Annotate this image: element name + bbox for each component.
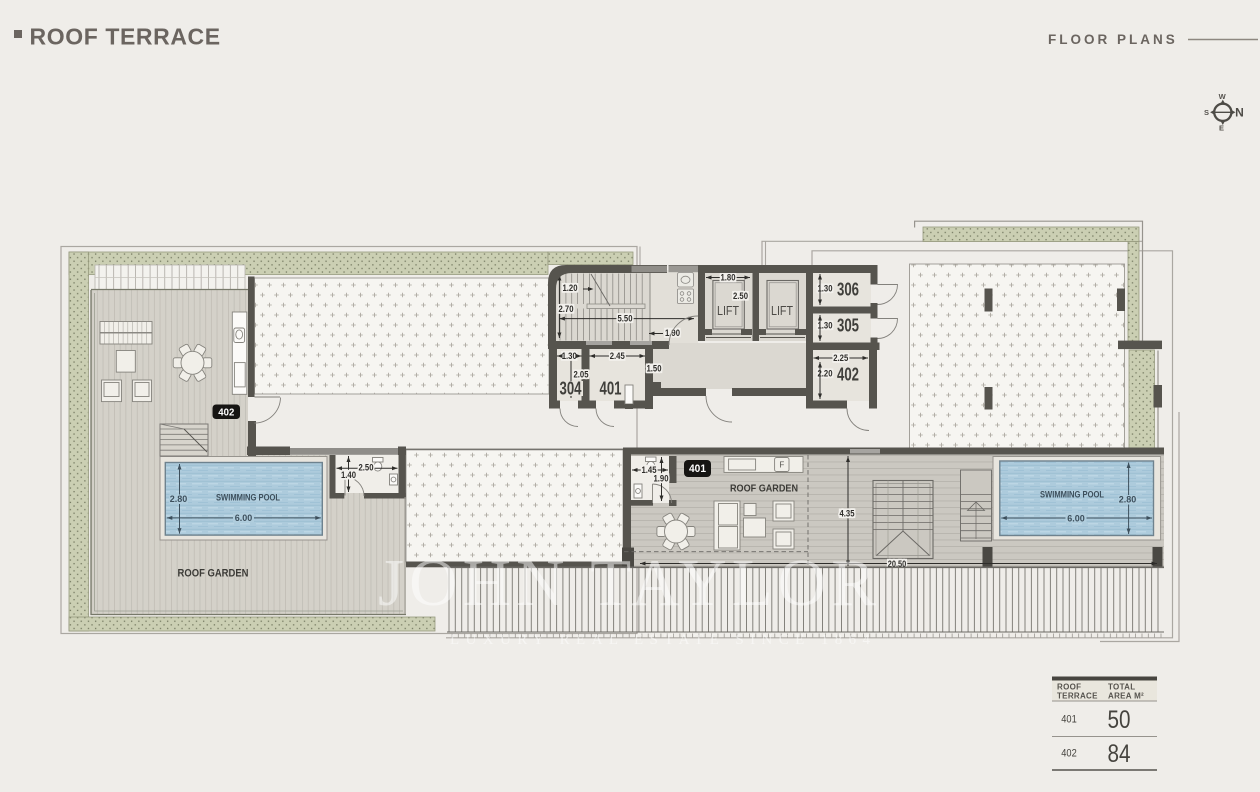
- svg-text:SWIMMING POOL: SWIMMING POOL: [1040, 490, 1104, 501]
- svg-text:LIFT: LIFT: [717, 304, 739, 318]
- svg-text:N: N: [1235, 106, 1244, 120]
- svg-text:1.90: 1.90: [654, 473, 669, 484]
- svg-text:1.50: 1.50: [647, 364, 662, 375]
- svg-text:1.40: 1.40: [341, 470, 356, 481]
- svg-text:2.50: 2.50: [359, 463, 374, 474]
- svg-text:W: W: [1219, 92, 1227, 101]
- svg-text:F: F: [779, 461, 784, 470]
- svg-text:401: 401: [600, 379, 622, 399]
- svg-text:2.80: 2.80: [1119, 495, 1137, 505]
- svg-text:TOTAL: TOTAL: [1108, 683, 1135, 692]
- svg-text:20.50: 20.50: [888, 559, 907, 570]
- svg-text:1.20: 1.20: [563, 283, 578, 294]
- svg-text:2.50: 2.50: [733, 291, 748, 302]
- svg-text:E: E: [1219, 124, 1224, 133]
- svg-text:ROOF TERRACE: ROOF TERRACE: [30, 24, 221, 50]
- svg-text:ROOF: ROOF: [1057, 683, 1081, 692]
- svg-text:402: 402: [1061, 748, 1077, 760]
- svg-text:1.80: 1.80: [721, 273, 736, 284]
- svg-text:SWIMMING POOL: SWIMMING POOL: [216, 493, 280, 504]
- svg-text:1.90: 1.90: [665, 328, 680, 339]
- svg-text:306: 306: [837, 280, 859, 300]
- svg-text:304: 304: [560, 379, 582, 399]
- svg-text:ROOF GARDEN: ROOF GARDEN: [730, 484, 798, 495]
- svg-text:402: 402: [837, 365, 859, 385]
- svg-text:5.50: 5.50: [618, 313, 633, 324]
- svg-text:TERRACE: TERRACE: [1057, 692, 1098, 701]
- svg-text:50: 50: [1108, 706, 1131, 734]
- svg-text:6.00: 6.00: [1067, 513, 1085, 523]
- svg-text:ROOF GARDEN: ROOF GARDEN: [178, 568, 249, 580]
- svg-text:305: 305: [837, 316, 859, 336]
- svg-text:2.80: 2.80: [170, 494, 188, 504]
- svg-text:402: 402: [218, 407, 234, 419]
- svg-text:401: 401: [1061, 714, 1077, 726]
- svg-text:2.45: 2.45: [610, 351, 626, 362]
- svg-text:401: 401: [689, 463, 706, 475]
- svg-text:LIFT: LIFT: [771, 304, 793, 318]
- svg-text:4.35: 4.35: [840, 509, 856, 520]
- svg-text:2.70: 2.70: [559, 304, 574, 315]
- svg-text:1.30: 1.30: [562, 351, 577, 362]
- svg-text:2.25: 2.25: [833, 353, 849, 364]
- svg-text:FLOOR PLANS: FLOOR PLANS: [1048, 32, 1178, 47]
- svg-text:AREA M²: AREA M²: [1108, 692, 1144, 701]
- svg-text:6.00: 6.00: [235, 513, 253, 523]
- svg-text:84: 84: [1108, 740, 1131, 768]
- svg-text:S: S: [1204, 108, 1209, 117]
